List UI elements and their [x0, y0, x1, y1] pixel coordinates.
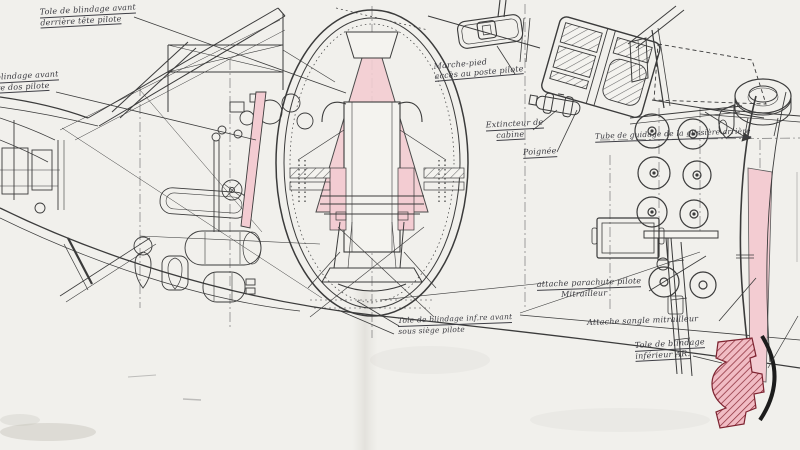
label-text: sous siège pilote	[398, 324, 465, 335]
pulley	[637, 197, 667, 227]
aircraft-technical-drawing	[0, 0, 800, 450]
pulley	[638, 157, 670, 189]
label-text: Mitrailleur	[561, 288, 607, 299]
cockpit-interior	[0, 90, 322, 302]
pulley-cluster	[635, 114, 716, 298]
label-lower-front-armor: Tole de blindage inf.re avant sous siège…	[398, 312, 513, 336]
pulley	[683, 161, 711, 189]
label-text: Poignée	[523, 146, 557, 158]
label-parachute-attachment: attache parachute pilote Mitrailleur	[537, 276, 642, 300]
canopy-glazing	[540, 15, 661, 119]
label-handle: Poignée	[523, 146, 557, 158]
label-text: cabine	[496, 129, 525, 141]
label-extinguisher: Extincteur de cabine	[485, 118, 544, 142]
pulley	[690, 272, 716, 298]
blueprint-page: Tole de blindage avant derrière tête pil…	[0, 0, 800, 450]
label-armor-behind-back: blindage avant re dos pilote	[0, 69, 59, 93]
label-lower-rear-armor: Tole de blindage inférieur AR.	[634, 337, 705, 362]
rear-deck-structure	[628, 6, 800, 124]
fire-extinguisher	[528, 89, 582, 119]
pulley	[680, 200, 708, 228]
